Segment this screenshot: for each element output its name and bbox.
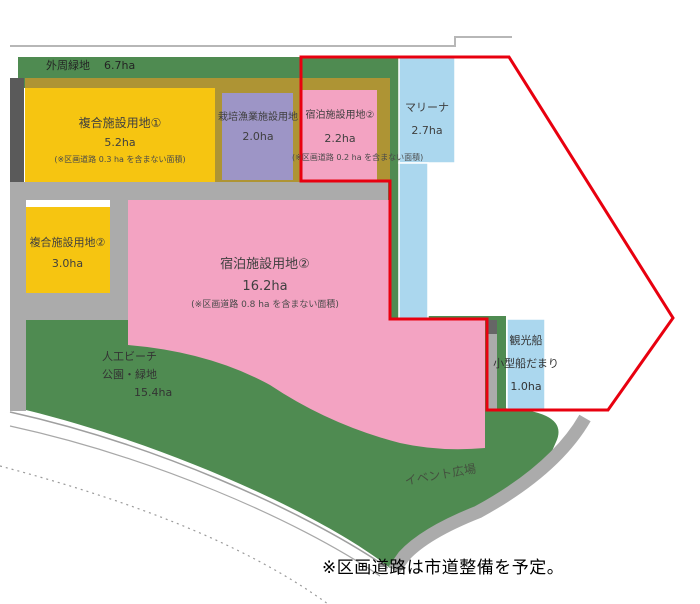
boat-basin-line1: 観光船 <box>460 329 592 352</box>
beach-park-line1: 人工ビーチ <box>102 348 172 366</box>
complex1-name: 複合施設用地① <box>30 116 210 131</box>
beach-park-line2: 公園・緑地 <box>102 366 172 384</box>
lodging-large-area: 16.2ha <box>165 279 365 295</box>
boat-basin-line2: 小型船だまり <box>460 352 592 375</box>
marina-area: 2.7ha <box>398 124 456 138</box>
outer-green-label: 外周緑地6.7ha <box>46 59 135 73</box>
top-boundary-line <box>10 37 512 46</box>
road-horizontal-upper <box>10 182 388 200</box>
marina-channel-strip <box>399 163 428 319</box>
outer-green-name: 外周緑地 <box>46 59 90 72</box>
boat-basin-label: 観光船 小型船だまり 1.0ha <box>460 329 592 398</box>
beach-park-label: 人工ビーチ 公園・緑地 15.4ha <box>102 348 172 402</box>
complex1-label: 複合施設用地① 5.2ha (※区画道路 0.3 ha を含まない面積) <box>30 116 210 170</box>
complex1-area: 5.2ha <box>30 136 210 150</box>
outer-green-area: 6.7ha <box>104 59 135 72</box>
marina-name: マリーナ <box>398 101 456 115</box>
marina-label: マリーナ 2.7ha <box>398 92 456 138</box>
complex2-name: 複合施設用地② <box>20 236 115 250</box>
complex2-area: 3.0ha <box>20 257 115 271</box>
road-dark-left <box>10 78 24 183</box>
beach-park-area: 15.4ha <box>102 384 172 402</box>
lodging-large-name: 宿泊施設用地② <box>165 257 365 273</box>
complex1-note: (※区画道路 0.3 ha を含まない面積) <box>30 155 210 165</box>
lodging-small-area: 2.2ha <box>280 132 400 146</box>
lodging-large-label: 宿泊施設用地② 16.2ha (※区画道路 0.8 ha を含まない面積) <box>165 257 365 311</box>
lodging-small-name: 宿泊施設用地② <box>280 110 400 123</box>
complex2-label: 複合施設用地② 3.0ha <box>20 236 115 271</box>
land-use-plan-map: 外周緑地6.7ha 複合施設用地① 5.2ha (※区画道路 0.3 ha を含… <box>0 0 700 604</box>
boat-basin-area: 1.0ha <box>460 375 592 398</box>
lodging-large-note: (※区画道路 0.8 ha を含まない面積) <box>165 300 365 311</box>
lodging-small-note: (※区画道路 0.2 ha を含まない面積) <box>292 153 423 163</box>
road-horizontal-lower <box>10 293 128 320</box>
road-footnote: ※区画道路は市道整備を予定。 <box>322 558 564 579</box>
